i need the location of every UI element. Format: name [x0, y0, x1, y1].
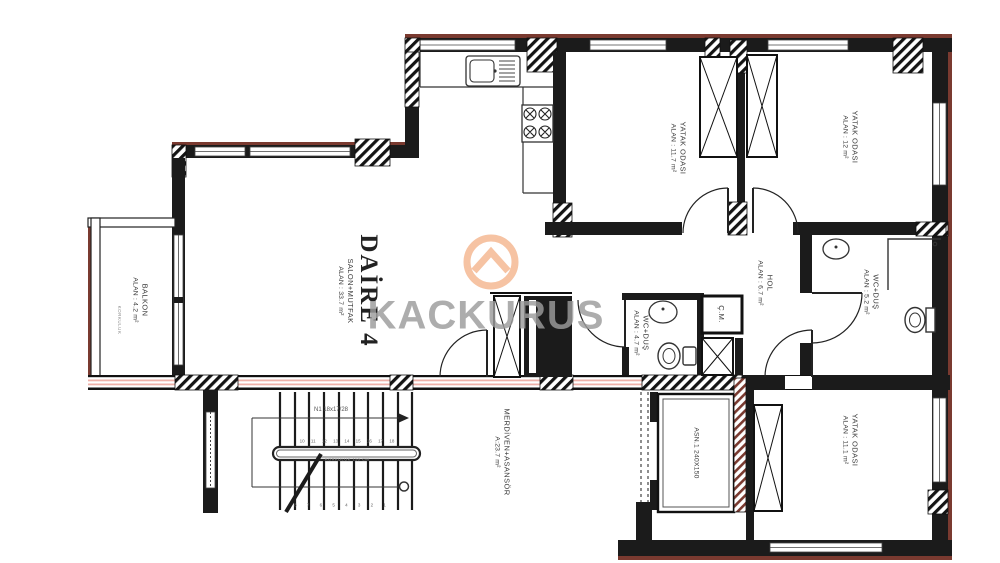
room-area: ALAN : 11.1 m² [840, 414, 849, 467]
room-name: HOL [765, 260, 775, 305]
room-name: YATAK ODASI [850, 414, 860, 467]
room-area: ALAN : 12 m² [840, 111, 849, 164]
room-label-bedroom-2: YATAK ODASI ALAN : 12 m² [840, 111, 859, 164]
room-label-bathroom-main: WC+DUŞ ALAN : 5.2 m² [861, 269, 880, 314]
room-label-bedroom-1: YATAK ODASI ALAN : 11.7 m² [668, 122, 687, 175]
room-name: YATAK ODASI [678, 122, 688, 175]
room-label-living: DAİRE 4 SALON+MUTFAK ALAN : 33.7 m² [335, 234, 381, 347]
stair-upper-step-numbers: 10 11 12 13 14 15 16 17 18 [300, 439, 395, 444]
room-name: BALKON [140, 277, 150, 322]
floor-plan: DAİRE 4 SALON+MUTFAK ALAN : 33.7 m² BALK… [0, 0, 1000, 563]
stair-flight-note: N1 18x17/28 [314, 407, 348, 413]
unit-title: DAİRE 4 [355, 234, 381, 347]
room-area: ALAN : 33.7 m² [335, 234, 344, 347]
room-name: MERDİVEN+ASANSÖR [502, 408, 512, 495]
stair-rail-note: KORKULUK 110 CM [325, 457, 369, 462]
room-label-bedroom-3: YATAK ODASI ALAN : 11.1 m² [840, 414, 859, 467]
elevator-label: ASN.1 240X150 [691, 427, 700, 478]
room-name: YATAK ODASI [850, 111, 860, 164]
room-name: WC+DUŞ [641, 310, 651, 355]
room-label-bathroom-small: WC+DUŞ ALAN : 4.7 m² [631, 310, 650, 355]
room-label-balcony: BALKON ALAN : 4.2 m² [130, 277, 149, 322]
balcony-railing-note: KORKULUK [116, 306, 122, 335]
room-area: ALAN : 6.7 m² [755, 260, 764, 305]
room-area: ALAN : 11.7 m² [668, 122, 677, 175]
room-name: WC+DUŞ [871, 269, 881, 314]
room-name: Ç.M. [716, 305, 726, 322]
room-area: ALAN : 4.7 m² [631, 310, 640, 355]
room-area: ALAN : 5.2 m² [861, 269, 870, 314]
room-label-laundry-closet: Ç.M. [716, 305, 726, 322]
room-name: SALON+MUTFAK [344, 234, 354, 347]
room-area: A:23.7 m² [492, 408, 501, 495]
stair-lower-step-numbers: 8 7 6 5 4 3 2 1 [294, 503, 386, 508]
room-area: ALAN : 4.2 m² [130, 277, 139, 322]
room-label-stairwell: MERDİVEN+ASANSÖR A:23.7 m² [492, 408, 511, 495]
elevator-size: ASN.1 240X150 [691, 427, 700, 478]
room-label-hall: HOL ALAN : 6.7 m² [755, 260, 774, 305]
